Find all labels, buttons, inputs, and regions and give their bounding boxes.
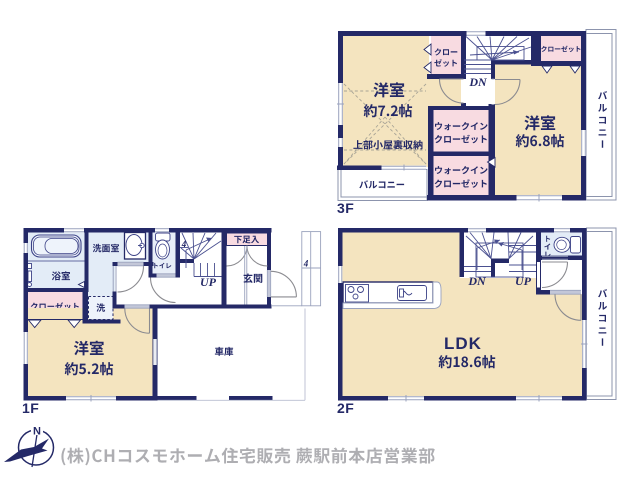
svg-text:4: 4	[181, 239, 187, 249]
svg-text:UP: UP	[200, 275, 217, 289]
svg-text:4: 4	[303, 259, 309, 269]
svg-text:1F: 1F	[22, 400, 39, 416]
svg-text:DN: DN	[467, 274, 487, 288]
svg-text:UP: UP	[515, 274, 532, 288]
svg-text:3F: 3F	[337, 200, 354, 216]
svg-text:LDK: LDK	[444, 334, 482, 353]
svg-text:N: N	[33, 426, 41, 438]
svg-text:DN: DN	[468, 75, 488, 89]
svg-text:2F: 2F	[337, 400, 354, 416]
